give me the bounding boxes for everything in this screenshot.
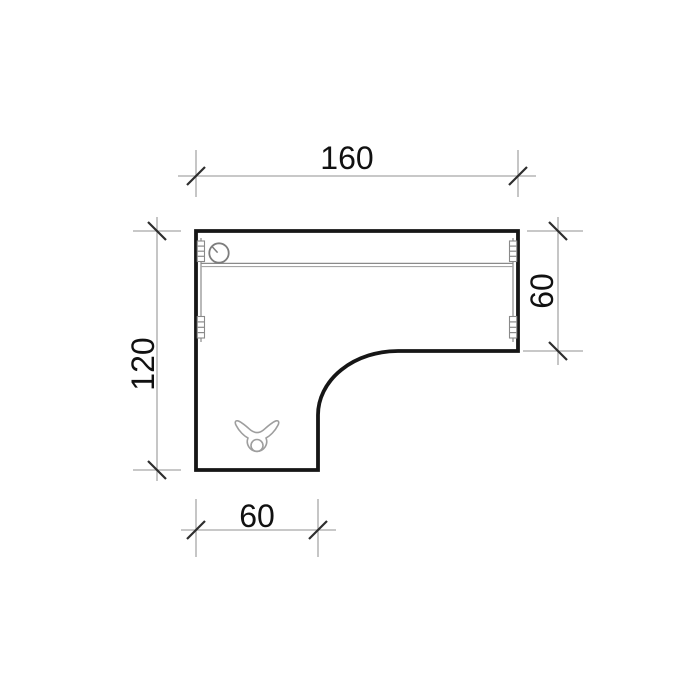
dimension-bottom-label: 60 [239,498,275,534]
dimension-bottom: 60 [181,498,336,557]
technical-drawing-canvas: 160 60 120 60 [0,0,700,700]
desk-plan-drawing: 160 60 120 60 [0,0,700,700]
cable-grommet-icon [209,243,228,262]
dimension-right: 60 [523,217,583,365]
connector-bracket-right-top-icon [510,241,517,262]
dimension-top: 160 [178,140,536,197]
connector-bracket-right-bottom-icon [510,317,517,339]
connector-bracket-left-bottom-icon [197,317,204,339]
dimension-top-label: 160 [320,140,373,176]
dimension-left-label: 120 [125,337,161,390]
dimension-right-label: 60 [524,273,560,309]
dimension-left: 120 [125,217,181,481]
connector-bracket-left-top-icon [197,241,204,262]
